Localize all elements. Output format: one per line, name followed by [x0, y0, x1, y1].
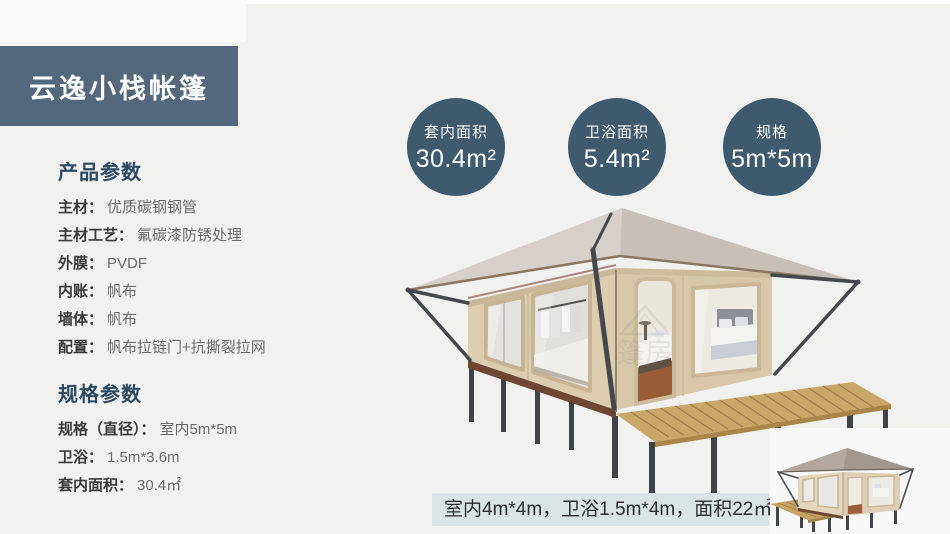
param-row: 套内面积：30.4㎡ — [58, 478, 398, 494]
stat-label: 卫浴面积 — [585, 121, 649, 142]
param-value: 1.5m*3.6m — [107, 449, 180, 466]
param-label: 主材工艺： — [58, 227, 133, 244]
param-row: 主材工艺：氟碳漆防锈处理 — [58, 228, 398, 244]
param-label: 配置： — [58, 339, 103, 356]
param-row: 墙体：帆布 — [58, 312, 398, 328]
param-row: 配置：帆布拉链门+抗撕裂拉网 — [58, 340, 398, 356]
param-value: 帆布 — [107, 283, 137, 300]
slide: 云逸小栈帐篷 产品参数 主材：优质碳钢钢管 主材工艺：氟碳漆防锈处理 外膜：PV… — [0, 0, 950, 534]
spec-params-heading: 规格参数 — [58, 378, 398, 407]
stat-circle-bath-area: 卫浴面积 5.4m² — [568, 98, 666, 196]
param-value: 氟碳漆防锈处理 — [137, 227, 242, 244]
param-value: 30.4㎡ — [137, 477, 181, 494]
stat-value: 5m*5m — [731, 145, 813, 174]
stat-label: 规格 — [756, 121, 788, 142]
stat-value: 5.4m² — [584, 145, 650, 174]
page-title: 云逸小栈帐篷 — [29, 67, 209, 106]
param-row: 规格（直径）：室内5m*5m — [58, 422, 398, 438]
param-value: 帆布拉链门+抗撕裂拉网 — [107, 339, 266, 356]
tent-render-small — [770, 428, 950, 534]
param-label: 内账： — [58, 283, 103, 300]
param-label: 规格（直径）： — [58, 421, 156, 438]
param-row: 卫浴：1.5m*3.6m — [58, 450, 398, 466]
caption-strip: 室内4m*4m，卫浴1.5m*4m，面积22㎡ — [432, 493, 769, 526]
window-left-a — [486, 297, 523, 370]
param-label: 套内面积： — [58, 477, 133, 494]
top-left-light-block — [0, 0, 246, 42]
param-value: PVDF — [107, 255, 147, 272]
stat-circle-indoor-area: 套内面积 30.4m² — [407, 98, 505, 196]
stat-value: 30.4m² — [416, 145, 497, 174]
product-params-heading: 产品参数 — [58, 156, 398, 185]
window-front — [691, 282, 763, 378]
window-left-b — [533, 282, 590, 391]
stat-circle-size: 规格 5m*5m — [723, 98, 821, 196]
parameters-panel: 产品参数 主材：优质碳钢钢管 主材工艺：氟碳漆防锈处理 外膜：PVDF 内账：帆… — [58, 156, 398, 506]
param-row: 外膜：PVDF — [58, 256, 398, 272]
param-label: 主材： — [58, 199, 103, 216]
param-label: 外膜： — [58, 255, 103, 272]
rod-anchor — [406, 288, 411, 293]
param-value: 帆布 — [107, 311, 137, 328]
title-banner: 云逸小栈帐篷 — [0, 46, 238, 126]
param-value: 优质碳钢钢管 — [107, 199, 197, 216]
watermark-text: 篷房 — [617, 337, 673, 368]
param-label: 墙体： — [58, 311, 103, 328]
param-row: 主材：优质碳钢钢管 — [58, 200, 398, 216]
param-label: 卫浴： — [58, 449, 103, 466]
param-value: 室内5m*5m — [160, 421, 238, 438]
param-row: 内账：帆布 — [58, 284, 398, 300]
caption-text: 室内4m*4m，卫浴1.5m*4m，面积22㎡ — [444, 499, 772, 520]
rod-anchor — [856, 280, 861, 285]
stat-label: 套内面积 — [424, 121, 488, 142]
